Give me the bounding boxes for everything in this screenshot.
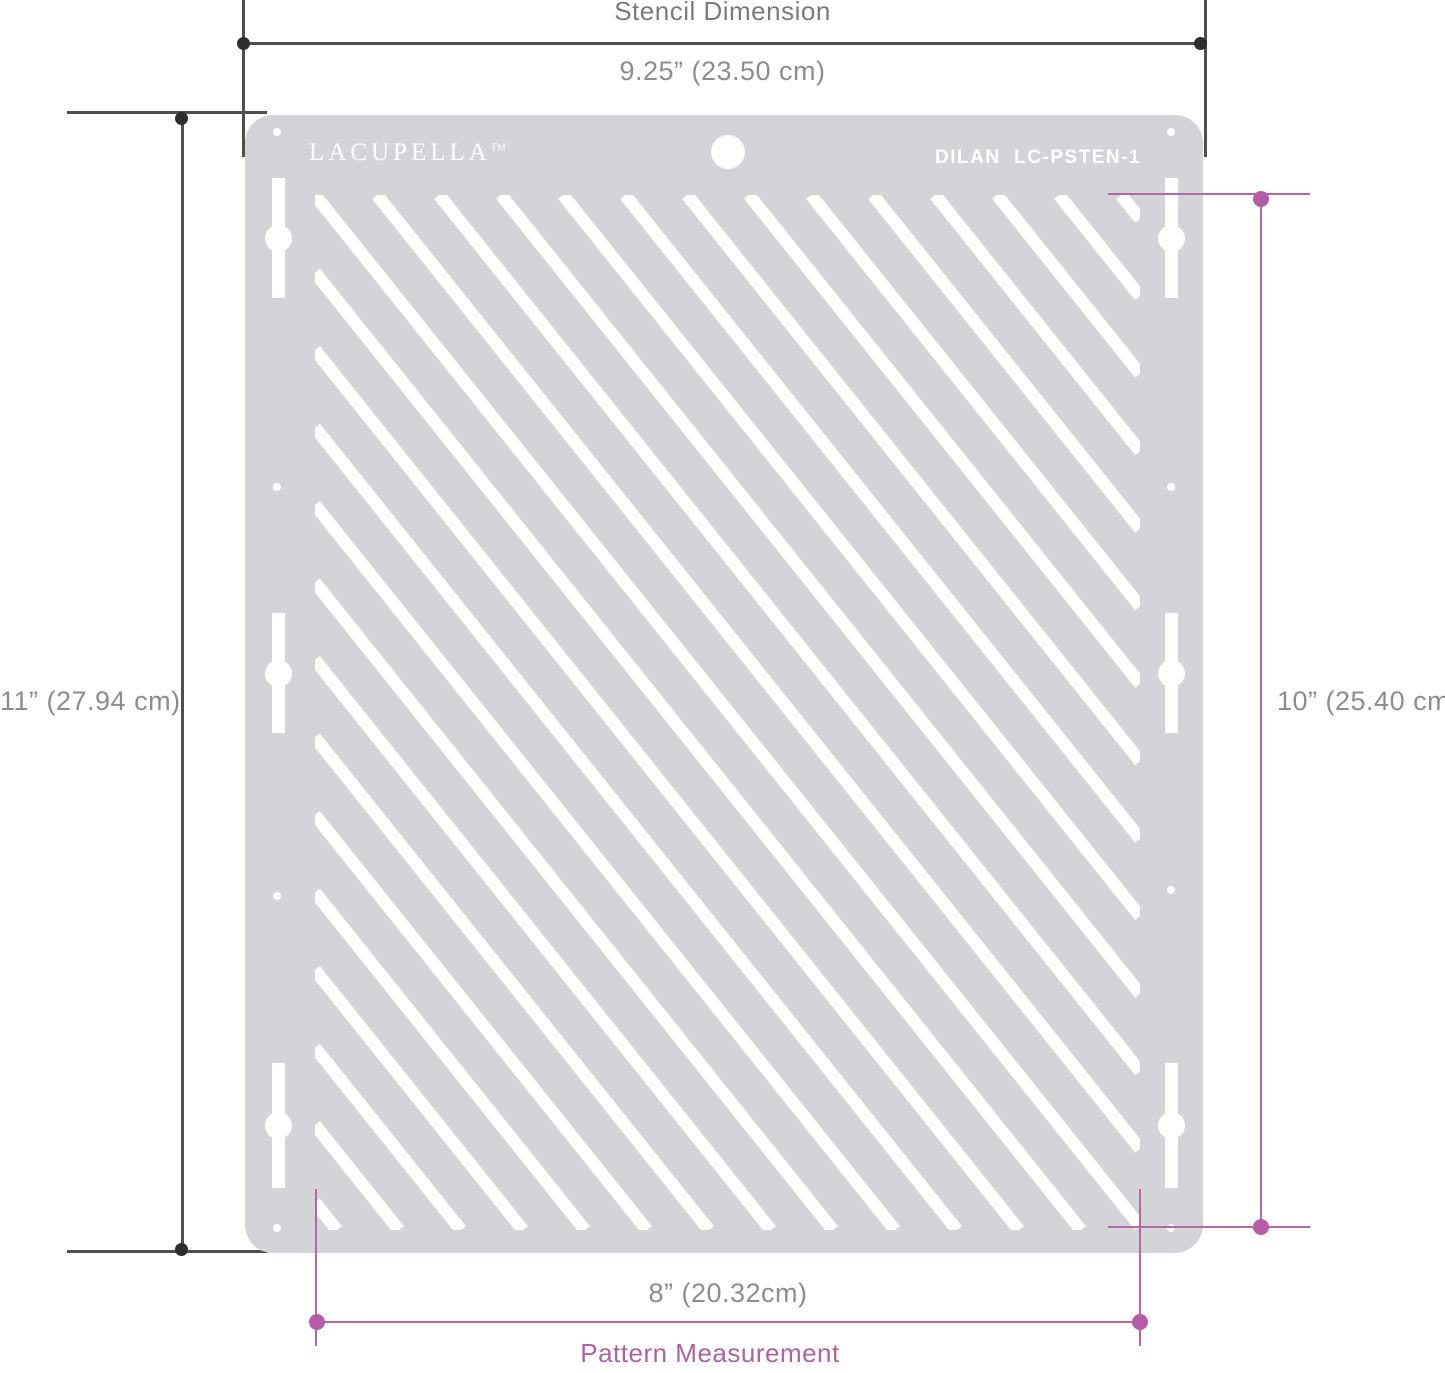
stencil-width-value: 9.25” (23.50 cm) [0, 56, 1445, 87]
pattern-height-value: 10” (25.40 cm) [1277, 686, 1445, 717]
stripe-line [315, 970, 523, 1230]
right-tick-top [1108, 193, 1310, 195]
registration-slot-circle [1158, 1112, 1185, 1139]
pattern-width-dimension-line [317, 1321, 1140, 1323]
dimension-endpoint-dot [1253, 191, 1269, 207]
pattern-width-value: 8” (20.32cm) [10, 1278, 1445, 1309]
pattern-height-dimension-line [1260, 199, 1262, 1227]
product-code: DILAN LC-PSTEN-1 [935, 147, 1141, 169]
registration-slot-circle [265, 1112, 292, 1139]
stripe-line [563, 195, 1140, 916]
stripe-line [749, 195, 1140, 684]
left-tick-bottom [67, 1250, 268, 1253]
registration-slot-circle [1158, 660, 1185, 687]
registration-slot-circle [1158, 225, 1185, 252]
stripe-line [315, 428, 957, 1231]
registration-dot [273, 1224, 281, 1232]
brand-logo-text: LACUPELLA [309, 139, 491, 166]
stripe-line [315, 273, 1081, 1231]
stripe-line [935, 195, 1140, 451]
registration-dot [273, 483, 281, 491]
hanging-hole [711, 135, 745, 169]
stripe-line [315, 195, 1140, 1226]
product-dimension-diagram: Stencil Dimension 9.25” (23.50 cm) 11” (… [0, 0, 1445, 1373]
registration-dot [273, 892, 281, 900]
stencil-height-dimension-line [181, 118, 184, 1251]
stripe-line [1121, 195, 1140, 219]
stencil-dimension-title: Stencil Dimension [0, 0, 1445, 27]
stripe-line [811, 195, 1140, 606]
dimension-endpoint-dot [1253, 1219, 1269, 1235]
pattern-measurement-label: Pattern Measurement [0, 1338, 1420, 1369]
dimension-endpoint-dot [175, 1243, 188, 1256]
registration-dot [273, 128, 281, 136]
dimension-endpoint-dot [1194, 37, 1207, 50]
stripe-line [315, 660, 771, 1230]
dimension-endpoint-dot [175, 112, 188, 125]
stripe-line [501, 195, 1140, 994]
stripe-line [315, 505, 895, 1230]
trademark-symbol: TM [491, 143, 506, 154]
stripe-line [315, 1048, 461, 1231]
stripe-pattern [315, 195, 1140, 1230]
stripe-line [997, 195, 1140, 374]
dimension-endpoint-dot [309, 1314, 325, 1330]
registration-slot-circle [265, 660, 292, 687]
dimension-endpoint-dot [237, 37, 250, 50]
registration-dot [1167, 483, 1175, 491]
stripe-line [315, 738, 709, 1231]
brand-logo: LACUPELLATM [309, 139, 506, 167]
registration-dot [1167, 128, 1175, 136]
left-tick-top [67, 111, 267, 114]
stripe-line [315, 1203, 337, 1231]
stripe-line [377, 195, 1140, 1149]
registration-slot-circle [265, 225, 292, 252]
stencil: LACUPELLATM DILAN LC-PSTEN-1 [245, 115, 1203, 1253]
dimension-endpoint-dot [1132, 1314, 1148, 1330]
registration-dot [1167, 886, 1175, 894]
stencil-width-dimension-line [244, 42, 1201, 45]
stencil-height-value: 11” (27.94 cm) [0, 686, 170, 717]
